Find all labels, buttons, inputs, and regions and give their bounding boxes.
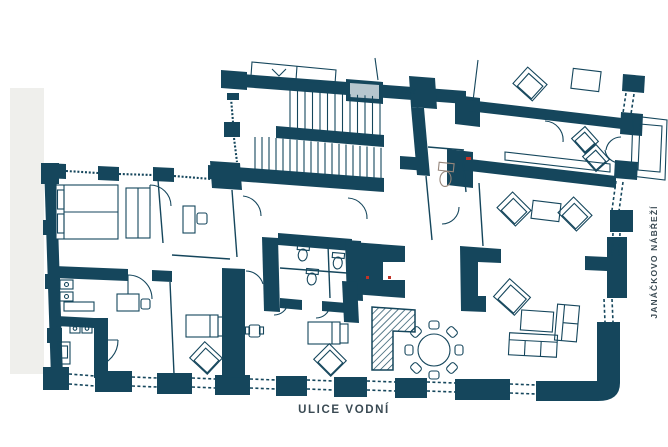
- wall-block: [400, 156, 428, 171]
- coffee-table: [520, 310, 553, 332]
- neighbor-building: [10, 88, 44, 374]
- dining-chair: [455, 345, 463, 355]
- street-label-bottom: ULICE VODNÍ: [298, 403, 390, 416]
- bath-wall: [278, 233, 352, 251]
- floor-plan-canvas: VÝTAH: [0, 0, 668, 447]
- wall-pier: [215, 375, 250, 395]
- stair-landing-bar: [276, 126, 384, 147]
- hatched-stair: [372, 307, 415, 370]
- wall-pier: [47, 328, 62, 343]
- chair: [197, 213, 207, 224]
- wall-corner: [536, 322, 620, 401]
- wall-interior: [222, 268, 245, 378]
- side-table: [571, 68, 601, 91]
- wall-segment: [585, 256, 607, 271]
- bath-wall: [280, 298, 302, 310]
- chair: [141, 299, 150, 309]
- street-label-right: JANÁČKOVO NÁBŘEŽÍ: [648, 205, 659, 318]
- desk: [117, 294, 139, 311]
- sofa-three-seat: [508, 333, 557, 357]
- wall-pier: [98, 166, 119, 181]
- bed: [308, 322, 348, 344]
- dining-chair: [429, 321, 439, 329]
- dining-chair: [405, 345, 413, 355]
- wall-segment: [607, 237, 627, 298]
- bath-wall: [262, 237, 280, 312]
- dining-chair: [410, 362, 423, 375]
- floor-plan-svg: VÝTAH: [0, 0, 668, 447]
- dining-chair: [446, 326, 459, 339]
- wall-pier: [455, 379, 510, 400]
- wall-pier: [157, 373, 192, 394]
- toilet: [331, 253, 344, 270]
- armchair: [190, 342, 223, 374]
- wall-pier: [45, 163, 66, 179]
- sofa-two-seat: [554, 304, 579, 342]
- armchair: [583, 145, 610, 172]
- wall-pier: [610, 210, 633, 232]
- wall-block: [342, 281, 359, 323]
- wall-notch: [383, 262, 405, 280]
- armchair: [572, 127, 599, 154]
- desk: [183, 206, 195, 233]
- wall-pier: [334, 377, 367, 397]
- wall-pier: [153, 167, 174, 182]
- armchair: [314, 344, 347, 377]
- wall-pier: [276, 376, 307, 396]
- side-table: [531, 200, 561, 221]
- wall-interior: [54, 266, 128, 281]
- wall-L: [460, 246, 501, 312]
- wall-pier: [43, 367, 69, 390]
- bed: [186, 315, 226, 337]
- office-chair: [246, 325, 264, 337]
- wall-block: [221, 70, 247, 90]
- wall-pier: [395, 378, 427, 398]
- armchair: [497, 192, 531, 226]
- stair-direction-arrow: [272, 69, 286, 76]
- dining-chair: [446, 362, 459, 375]
- wall-block: [227, 93, 239, 100]
- wall-block: [224, 122, 240, 137]
- armchair: [513, 67, 547, 101]
- room-upper-wall: [468, 100, 622, 129]
- wall-pier: [622, 74, 645, 93]
- double-bed: [56, 185, 118, 239]
- dining-chair: [429, 371, 439, 379]
- wall-interior: [152, 270, 172, 282]
- desk: [64, 302, 94, 311]
- armchair: [558, 197, 592, 231]
- wardrobe: [126, 188, 150, 238]
